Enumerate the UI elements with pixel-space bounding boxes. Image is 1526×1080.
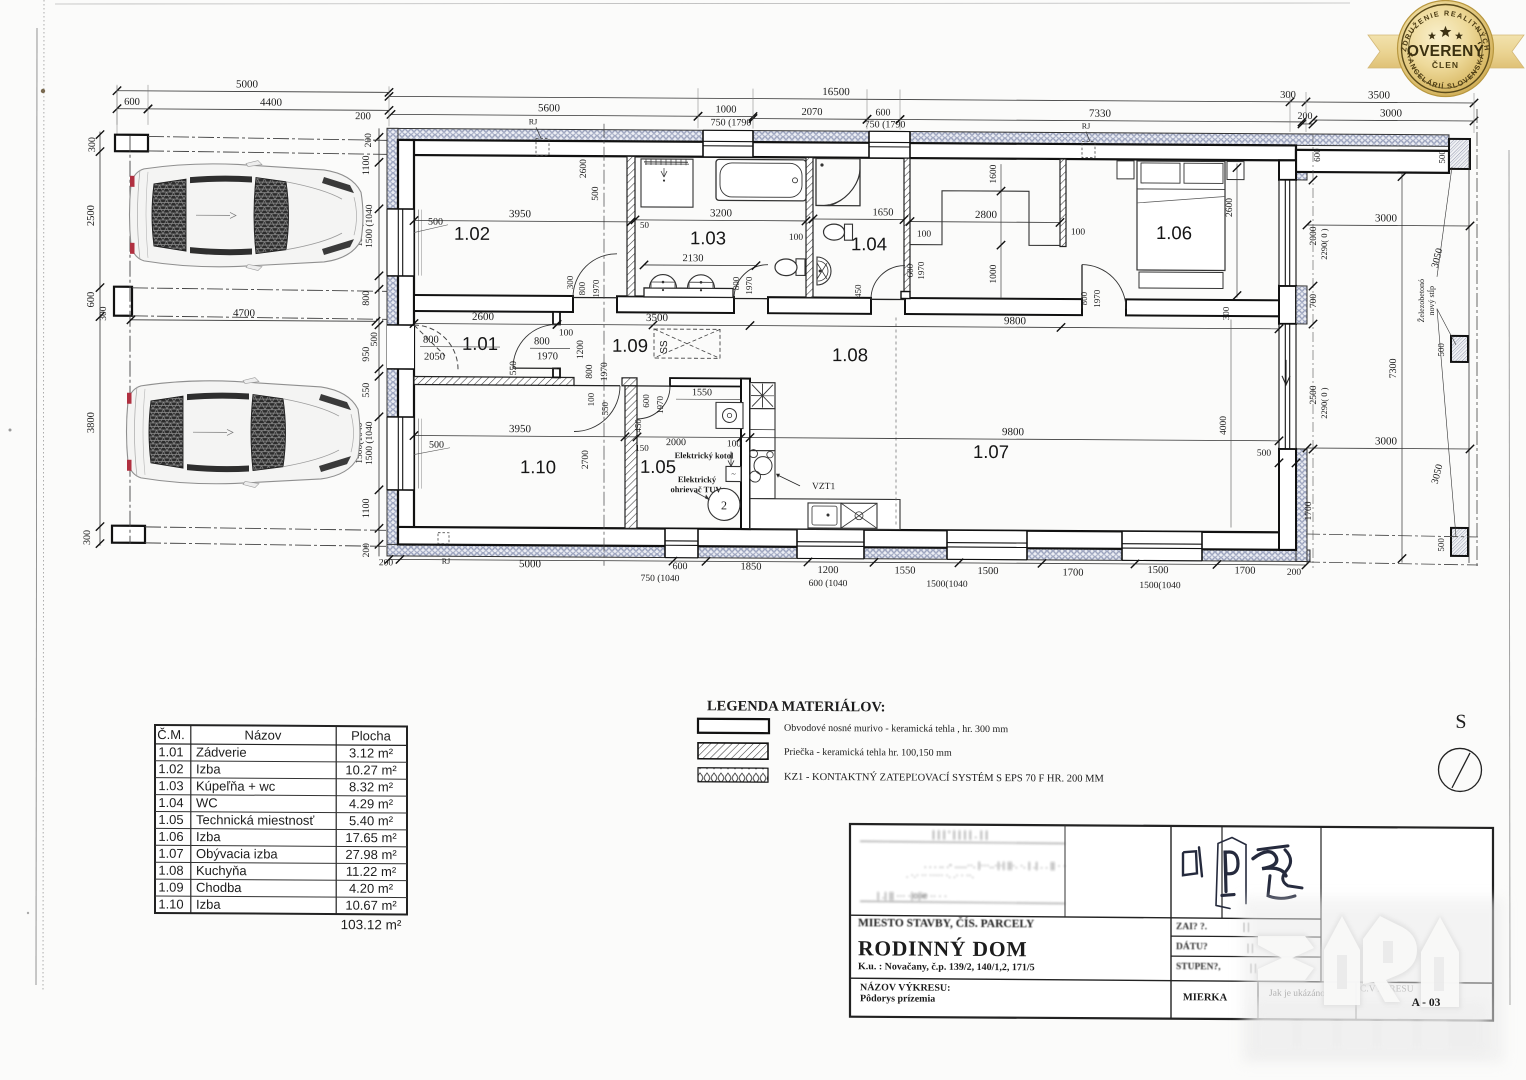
svg-text:600: 600 [673, 561, 688, 572]
svg-text:4.29 m²: 4.29 m² [349, 796, 394, 811]
svg-text:800: 800 [577, 281, 587, 295]
svg-text:1.04: 1.04 [851, 233, 887, 254]
svg-text:RJ: RJ [442, 557, 450, 566]
svg-text:Kuchyňa: Kuchyňa [196, 863, 247, 878]
svg-text:2800: 2800 [975, 209, 997, 221]
svg-text:550: 550 [600, 401, 610, 415]
svg-text:1000: 1000 [989, 264, 999, 283]
svg-text:2000: 2000 [666, 437, 686, 448]
svg-text:1000: 1000 [716, 104, 737, 115]
svg-text:1.01: 1.01 [158, 744, 183, 759]
svg-text:1970: 1970 [744, 276, 754, 295]
svg-text:9800: 9800 [1004, 315, 1026, 327]
svg-text:1.10: 1.10 [520, 456, 556, 477]
svg-text:1970: 1970 [1092, 289, 1102, 308]
svg-text:4.20 m²: 4.20 m² [349, 881, 394, 896]
svg-text:300: 300 [1221, 306, 1231, 320]
svg-text:700: 700 [1309, 294, 1319, 309]
svg-text:1.05: 1.05 [158, 812, 183, 827]
svg-text:ohrievač TUV: ohrievač TUV [670, 484, 722, 494]
svg-text:750 (1040: 750 (1040 [641, 573, 680, 584]
svg-text:300: 300 [565, 275, 575, 289]
svg-text:500: 500 [591, 186, 601, 201]
svg-text:550: 550 [509, 361, 519, 376]
svg-text:500: 500 [428, 217, 443, 228]
svg-text:10.27 m²: 10.27 m² [345, 762, 397, 777]
svg-text:300: 300 [82, 530, 93, 545]
svg-text:300: 300 [87, 137, 98, 152]
svg-text:2: 2 [721, 498, 727, 512]
svg-text:800: 800 [423, 335, 439, 346]
svg-text:750 (1790: 750 (1790 [711, 117, 752, 128]
svg-text:LEGENDA MATERIÁLOV:: LEGENDA MATERIÁLOV: [707, 697, 885, 715]
svg-text:100: 100 [727, 439, 741, 449]
svg-text:RODINNÝ DOM: RODINNÝ DOM [858, 936, 1027, 961]
svg-text:Obvodové nosné murivo - kerami: Obvodové nosné murivo - keramická tehla … [784, 723, 1008, 735]
svg-text:2600: 2600 [579, 159, 589, 178]
svg-text:1100: 1100 [361, 155, 372, 175]
svg-text:2000: 2000 [1309, 226, 1319, 245]
svg-text:550: 550 [361, 383, 372, 398]
svg-text:1.02: 1.02 [454, 223, 490, 244]
svg-text:1700: 1700 [1304, 501, 1314, 520]
svg-text:ZAI? ?.: ZAI? ?. [1176, 922, 1207, 932]
svg-text:2290( 0 ): 2290( 0 ) [1319, 387, 1329, 418]
svg-text:11.22 m²: 11.22 m² [346, 864, 397, 879]
svg-text:300: 300 [99, 306, 109, 321]
svg-text:100: 100 [789, 233, 803, 243]
svg-text:9800: 9800 [1002, 426, 1024, 438]
svg-text:2500: 2500 [86, 205, 97, 226]
svg-text:1.08: 1.08 [832, 344, 868, 365]
svg-text:5.40 m²: 5.40 m² [349, 813, 394, 828]
svg-text:Technická miestnosť: Technická miestnosť [196, 812, 314, 828]
svg-text:1850: 1850 [741, 562, 762, 573]
svg-text:100: 100 [586, 392, 596, 406]
svg-text:4400: 4400 [260, 97, 282, 109]
svg-text:1500: 1500 [1148, 565, 1169, 576]
svg-text:S: S [1455, 711, 1466, 733]
svg-text:KZ1 - KONTAKTNÝ ZATEPĽOVACÍ SY: KZ1 - KONTAKTNÝ ZATEPĽOVACÍ SYSTÉM S EPS… [784, 771, 1104, 785]
svg-text:3000: 3000 [1375, 212, 1397, 224]
svg-text:1.07: 1.07 [973, 441, 1009, 462]
svg-text:Obývacia izba: Obývacia izba [196, 846, 278, 862]
svg-text:1200: 1200 [576, 340, 586, 359]
svg-text:Elektrický kotol: Elektrický kotol [675, 450, 734, 460]
svg-text:2600: 2600 [1225, 198, 1235, 217]
svg-text:3800: 3800 [86, 412, 97, 433]
svg-text:1970: 1970 [916, 261, 926, 280]
svg-text:1.07: 1.07 [158, 846, 183, 861]
svg-text:5600: 5600 [538, 102, 560, 114]
svg-text:5000: 5000 [236, 78, 258, 90]
svg-text:1650: 1650 [873, 207, 894, 218]
svg-text:MIESTO STAVBY, ČÍS. PARCELY: MIESTO STAVBY, ČÍS. PARCELY [858, 915, 1035, 930]
svg-text:500: 500 [1257, 449, 1271, 459]
svg-text:3000: 3000 [1375, 435, 1397, 447]
svg-text:200: 200 [1298, 111, 1313, 122]
svg-text:~: ~ [731, 469, 736, 478]
svg-text:800: 800 [1079, 291, 1089, 305]
svg-text:500: 500 [370, 332, 380, 347]
svg-text:1.03: 1.03 [690, 227, 726, 248]
svg-text:600: 600 [905, 263, 915, 277]
svg-text:200: 200 [1287, 568, 1301, 578]
svg-text:5000: 5000 [519, 558, 541, 570]
svg-text:1550: 1550 [895, 565, 916, 576]
svg-text:nový stĺp: nový stĺp [1426, 286, 1436, 316]
svg-text:103.12 m²: 103.12 m² [341, 917, 402, 932]
svg-text:600 (1040: 600 (1040 [809, 578, 848, 589]
svg-text:17.65 m²: 17.65 m² [345, 830, 397, 845]
svg-text:800: 800 [361, 291, 372, 306]
svg-text:800: 800 [731, 276, 741, 290]
svg-text:1.02: 1.02 [158, 761, 183, 776]
svg-text:150: 150 [635, 443, 649, 453]
svg-text:7300: 7300 [1388, 358, 1399, 378]
svg-text:2050: 2050 [424, 352, 445, 363]
svg-text:| | | ' | | | | . | |: | | | ' | | | | . | | [932, 830, 988, 841]
svg-text:1.03: 1.03 [158, 778, 183, 793]
svg-text:4700: 4700 [233, 307, 255, 319]
svg-text:DÁTU?: DÁTU? [1176, 940, 1208, 952]
svg-text:16500: 16500 [822, 86, 850, 98]
svg-text:STUPEN?,: STUPEN?, [1176, 962, 1221, 972]
svg-text:100: 100 [1071, 228, 1085, 238]
svg-text:3950: 3950 [509, 423, 531, 435]
svg-text:VZT1: VZT1 [812, 482, 835, 492]
svg-text:1700: 1700 [1235, 566, 1256, 577]
svg-text:200: 200 [362, 543, 372, 558]
svg-text:2290( 0 ): 2290( 0 ) [1319, 228, 1329, 259]
svg-text:1500: 1500 [978, 566, 999, 577]
svg-text:7330: 7330 [1089, 108, 1111, 120]
svg-text:K.u. : Novačany, č.p. 139/2, 1: K.u. : Novačany, č.p. 139/2, 140/1,2, 17… [858, 961, 1035, 973]
svg-text:3950: 3950 [509, 208, 531, 220]
svg-text:1.08: 1.08 [158, 863, 183, 878]
svg-text:MIERKA: MIERKA [1183, 992, 1228, 1003]
svg-text:RJ: RJ [529, 117, 537, 126]
svg-text:Chodba: Chodba [196, 880, 242, 895]
svg-text:2070: 2070 [802, 107, 823, 118]
svg-text:1.09: 1.09 [612, 335, 648, 356]
svg-text:100: 100 [917, 230, 931, 240]
svg-text:1100: 1100 [361, 498, 372, 518]
svg-text:2600: 2600 [472, 311, 494, 323]
svg-text:3500: 3500 [1368, 89, 1390, 101]
svg-text:300: 300 [1280, 90, 1296, 101]
svg-text:OVERENÝ: OVERENÝ [1407, 42, 1485, 60]
svg-text:8.32 m²: 8.32 m² [349, 779, 394, 794]
svg-text:600: 600 [1312, 148, 1322, 162]
svg-text:2700: 2700 [581, 450, 591, 469]
svg-text:1970: 1970 [600, 362, 610, 381]
svg-text:1970: 1970 [537, 351, 558, 362]
svg-text:3050: 3050 [1430, 247, 1446, 269]
svg-text:450: 450 [633, 419, 643, 433]
svg-text:Zádverie: Zádverie [196, 745, 247, 760]
svg-text:Elektrický: Elektrický [678, 474, 717, 484]
svg-text:Izba: Izba [196, 897, 221, 912]
svg-text:1.06: 1.06 [158, 829, 183, 844]
svg-text:Názov: Názov [245, 727, 282, 742]
svg-text:950: 950 [361, 347, 372, 362]
svg-text:450: 450 [853, 284, 863, 298]
svg-text:1200: 1200 [818, 565, 839, 576]
svg-text:27.98 m²: 27.98 m² [345, 847, 397, 862]
svg-text:1700: 1700 [1063, 567, 1084, 578]
svg-text:600: 600 [876, 107, 891, 118]
svg-text:50: 50 [640, 220, 649, 230]
svg-text:500: 500 [1436, 538, 1446, 552]
svg-text:3.12 m²: 3.12 m² [349, 745, 394, 760]
svg-text:1600: 1600 [989, 164, 999, 183]
svg-text:1.06: 1.06 [1156, 222, 1192, 243]
svg-text:10.67 m²: 10.67 m² [345, 898, 397, 913]
svg-text:Železobetonó: Železobetonó [1416, 279, 1426, 323]
svg-text:800: 800 [585, 364, 595, 379]
svg-text:ČLEN: ČLEN [1432, 59, 1459, 70]
svg-text:Plocha: Plocha [351, 728, 392, 743]
svg-text:NÁZOV VÝKRESU:: NÁZOV VÝKRESU: [860, 981, 950, 994]
svg-text:SS: SS [659, 340, 670, 354]
svg-text:2500: 2500 [1309, 385, 1319, 404]
svg-text:1500(1040: 1500(1040 [926, 579, 967, 590]
svg-text:3500: 3500 [646, 312, 668, 324]
svg-text:Kúpeľňa + wc: Kúpeľňa + wc [196, 778, 276, 793]
svg-text:WC: WC [196, 795, 218, 810]
svg-text:4000: 4000 [1219, 416, 1229, 435]
svg-text:1500 (1040: 1500 (1040 [364, 204, 375, 248]
svg-text:1970: 1970 [591, 279, 601, 298]
svg-text:3000: 3000 [1380, 107, 1402, 119]
svg-text:800: 800 [534, 336, 550, 347]
svg-text:1970: 1970 [655, 396, 665, 415]
svg-text:500: 500 [1437, 150, 1447, 164]
svg-text:A - 03: A - 03 [1412, 997, 1441, 1009]
svg-text:1.09: 1.09 [158, 880, 183, 895]
svg-text:1500 (1040: 1500 (1040 [364, 421, 375, 465]
svg-text:Izba: Izba [196, 829, 221, 844]
svg-text:2130: 2130 [683, 253, 704, 264]
svg-text:Izba: Izba [196, 761, 221, 776]
svg-text:600: 600 [641, 394, 651, 408]
svg-text:Priečka - keramická tehla hr.: Priečka - keramická tehla hr. 100,150 mm [784, 747, 952, 759]
svg-text:Pôdorys prízemia: Pôdorys prízemia [860, 993, 935, 1004]
svg-text:Č.M.: Č.M. [157, 727, 184, 742]
svg-text:600: 600 [124, 97, 140, 108]
svg-text:1.10: 1.10 [158, 896, 183, 911]
svg-text:1.04: 1.04 [158, 795, 183, 810]
svg-text:200: 200 [355, 111, 371, 122]
svg-text:RJ: RJ [1082, 122, 1090, 131]
svg-text:| .| || ··· ·|o|ie ··: | .| || ··· ·|o|ie ·· · · [877, 890, 947, 900]
svg-text:600: 600 [86, 292, 97, 308]
svg-text:. ·.· ·· ····· ·. .· · ··.: . ·.· ·· ····· ·. .· · ··. [906, 870, 974, 880]
svg-text:1.01: 1.01 [462, 333, 498, 354]
svg-text:1550: 1550 [692, 387, 712, 398]
svg-text:200: 200 [379, 558, 393, 568]
svg-text:3200: 3200 [710, 207, 732, 219]
svg-text:1500(1040: 1500(1040 [1139, 580, 1180, 591]
svg-text:1.05: 1.05 [640, 456, 676, 477]
svg-text:3050: 3050 [1430, 463, 1446, 485]
svg-text:100: 100 [559, 328, 573, 338]
